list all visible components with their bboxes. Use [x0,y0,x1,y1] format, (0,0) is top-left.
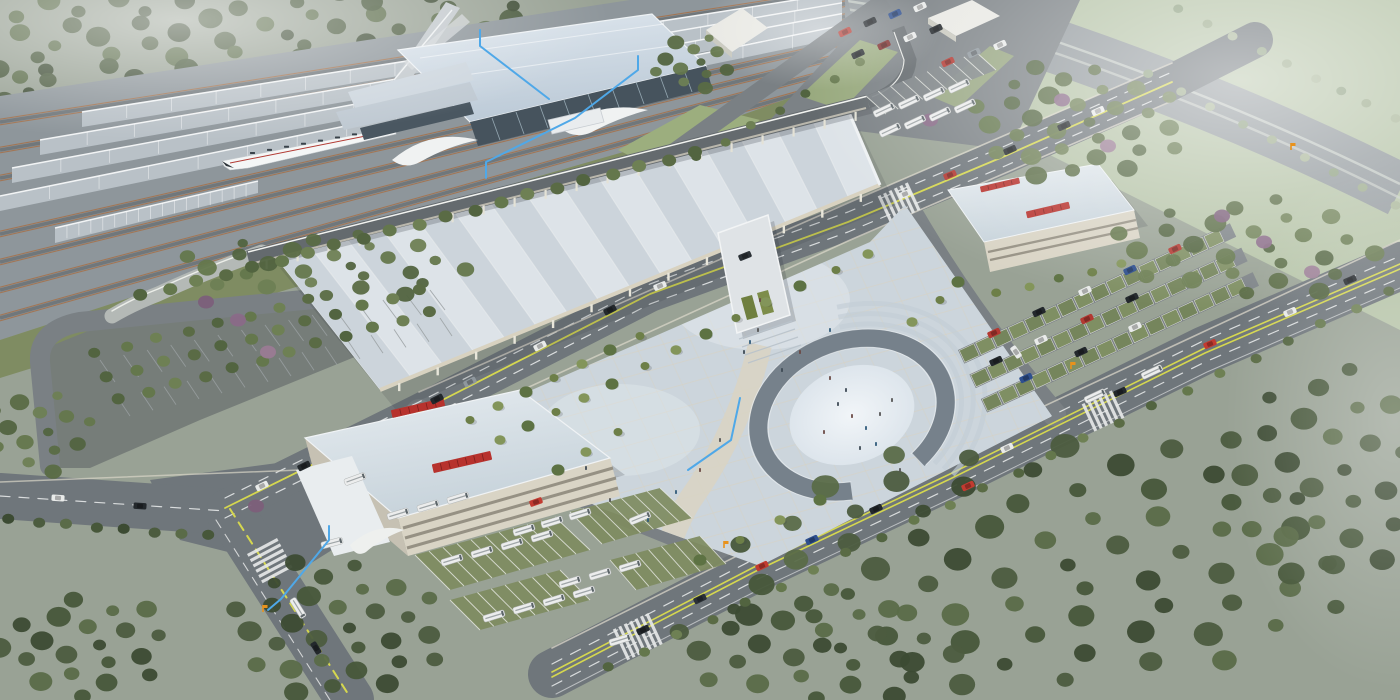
aerial-rendering-viewport [0,0,1400,700]
station-complex-rendering [0,0,1400,700]
